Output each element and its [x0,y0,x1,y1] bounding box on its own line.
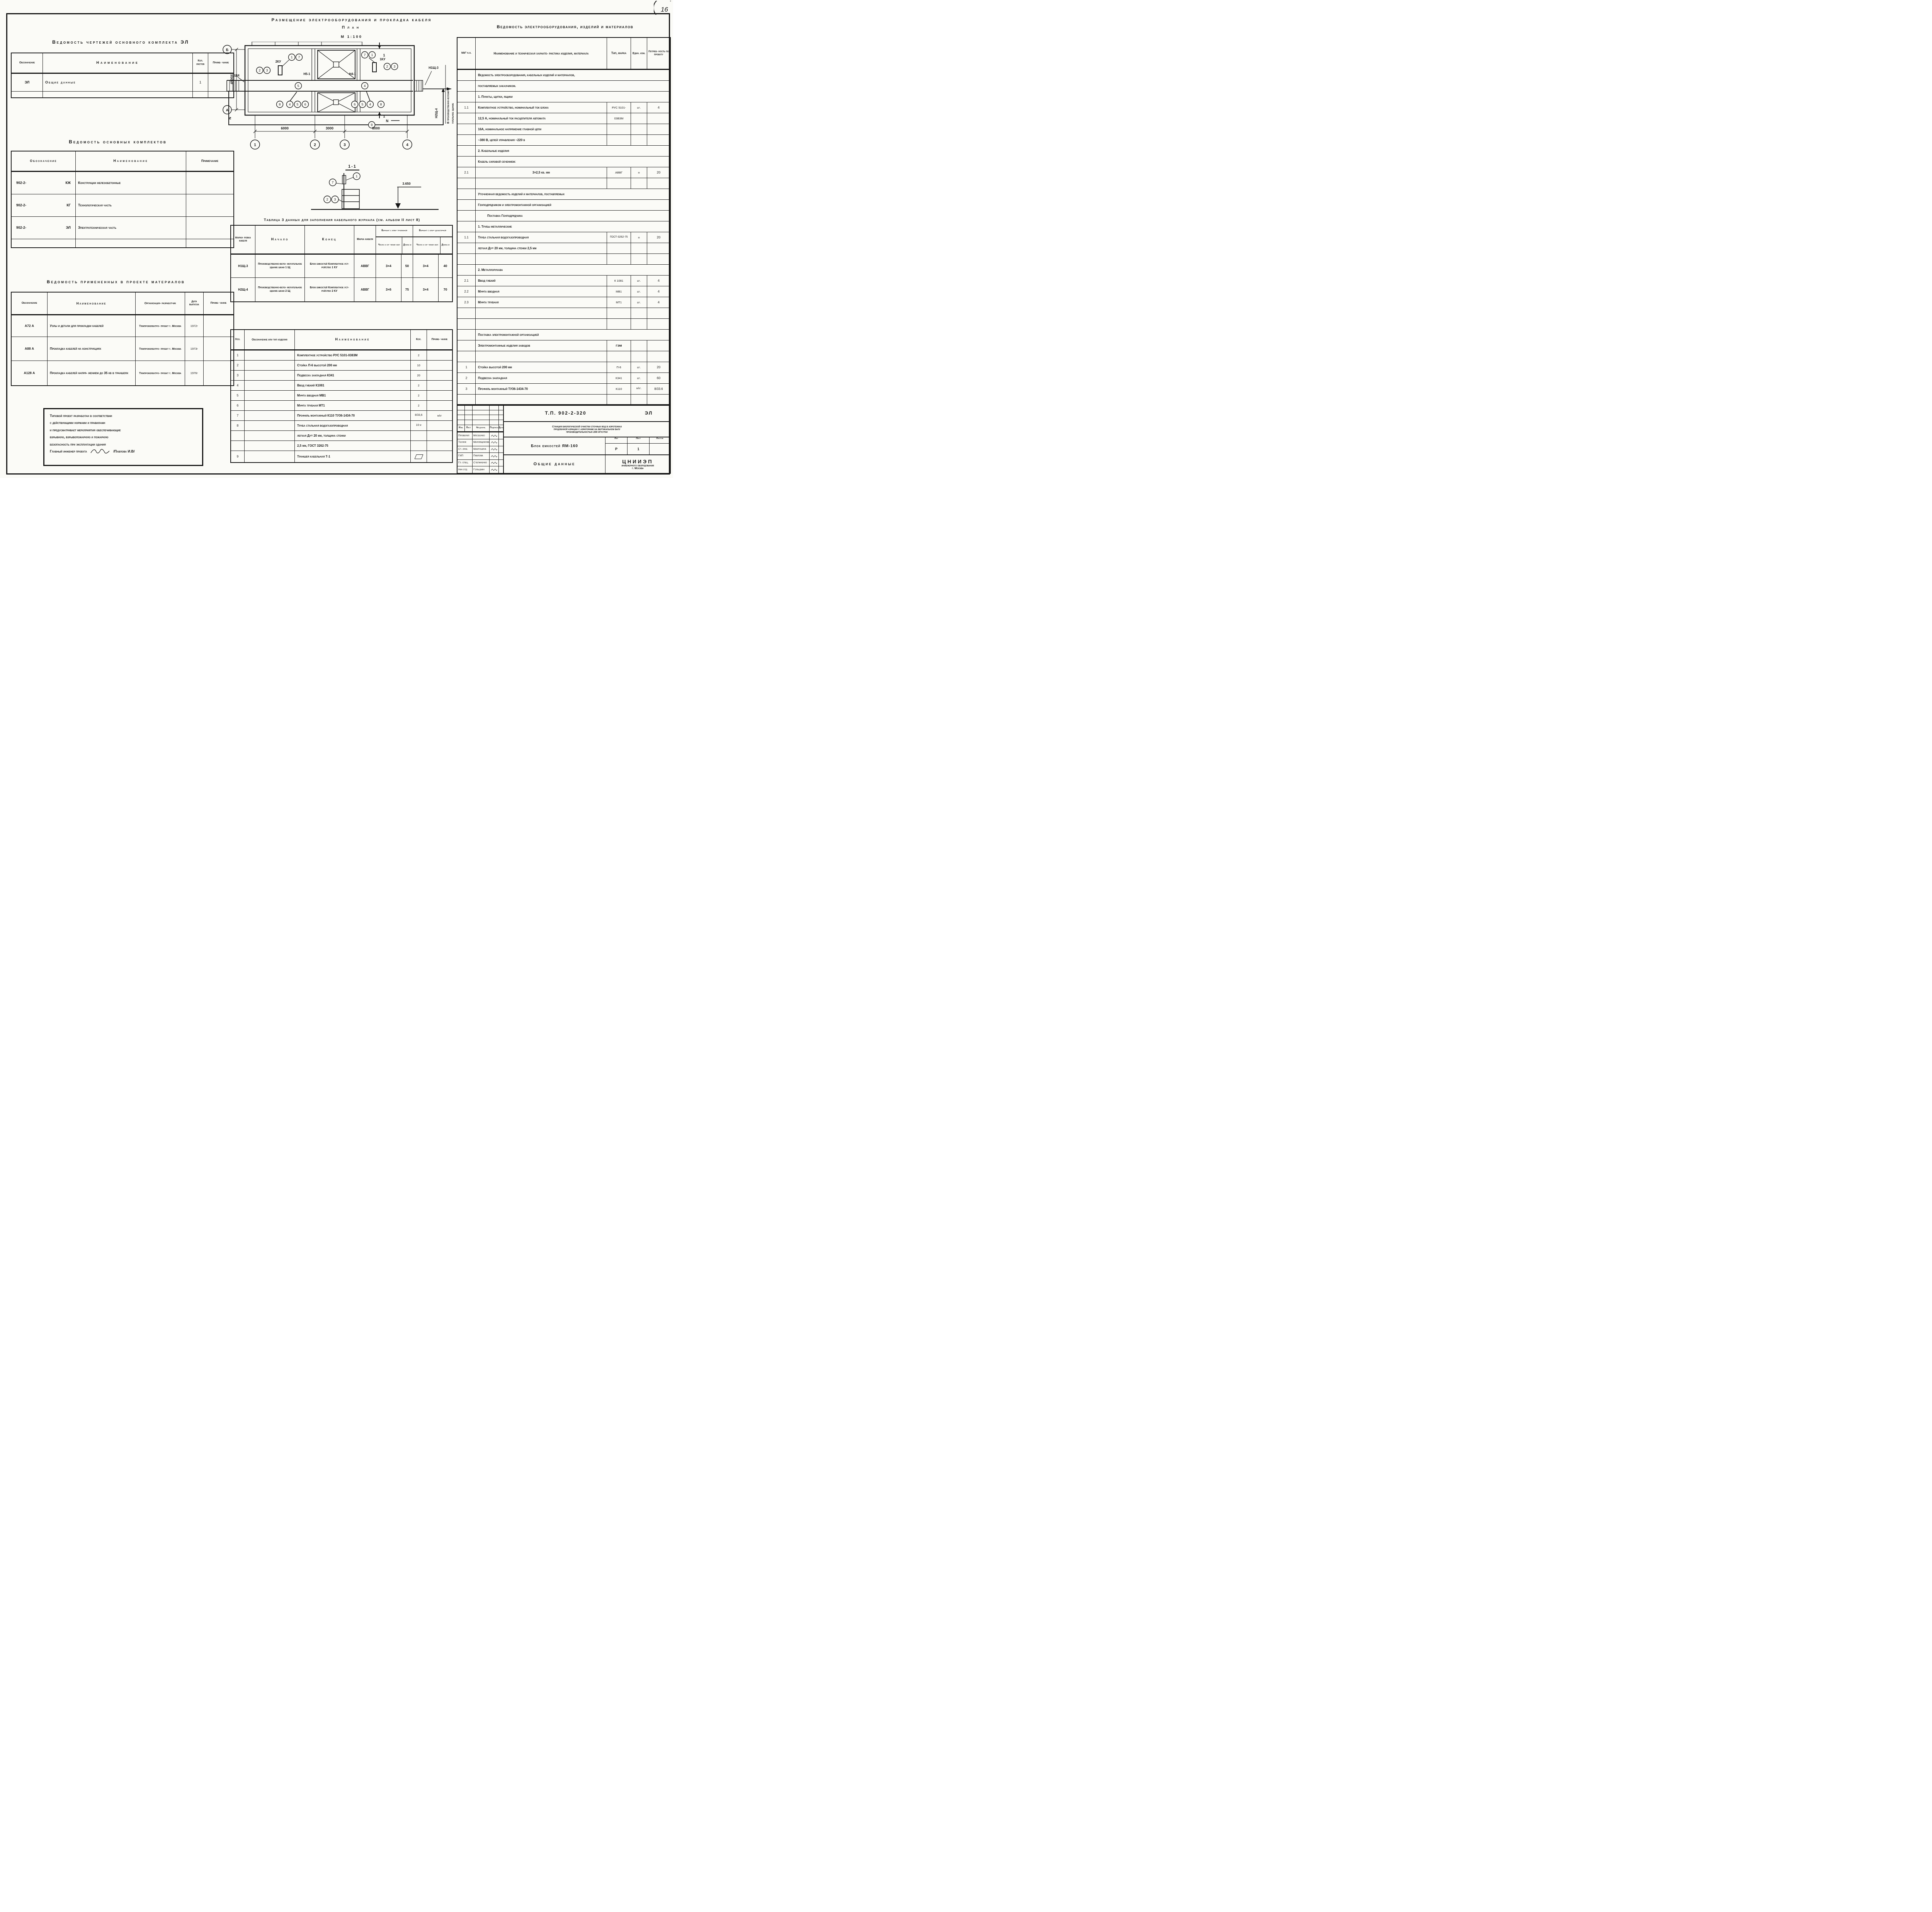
cell-start: Производственно-вспо- могательное здание… [255,255,304,277]
cell-unit: м/кг. [631,384,647,394]
cell-designation: А72 А [12,315,47,337]
cell-start: Производственно-вспо- могательное здание… [255,278,304,301]
cell-end: Блок емкостей Комплектное уст- ройство 2… [304,278,354,301]
staff-role: Гл. спец. [457,460,472,466]
cell-pos: 5 [231,391,244,400]
cell-unit [631,124,647,134]
note-line: взрывную, взрывопожарную и пожарную [50,434,197,441]
cell-type [607,243,631,253]
table-header-row: NN° п.п. Наименование и техническая хара… [457,38,670,70]
cell-note [186,217,233,239]
cell-unit: м [631,167,647,178]
cell-num [457,211,475,221]
cell-note [203,361,233,385]
cell [498,405,503,410]
table-row: 902-2-ЭЛ Электротехническая часть [12,216,233,239]
org-line: инженерного оборудования [621,464,654,467]
cell-designation: 902-2- [16,226,26,230]
cell-note [427,431,452,441]
cell [464,420,472,425]
cell-mark: Н2Щ-4 [231,278,255,301]
callout-1: 1 [356,174,358,178]
table-row [12,239,233,247]
cell [464,410,472,415]
cell-section-text: Поставка Генподрядчика [475,211,670,221]
cell-qty: 10 м [410,421,427,430]
cell-unit [631,308,647,318]
cell-type [607,319,631,329]
org-city: г. Москва [632,467,643,470]
label-1ku: 1КУ [380,58,386,61]
cell-type [607,308,631,318]
col-num: NN° п.п. [457,38,475,69]
table-row [12,91,233,97]
cell-num [457,308,475,318]
col-type: Тип, марка [607,38,631,69]
cell [464,415,472,420]
cell-type: ГОСТ-3262-75 [607,232,631,243]
cell-num [457,330,475,340]
callout-3: 3 [394,65,396,68]
cell-num: 2.2 [457,286,475,297]
table-header-row: Обозначение Наименование Организация- ра… [12,293,233,315]
cell-type [244,361,294,370]
cell-qty: 4 [647,276,670,286]
cell-qty [647,135,670,145]
cell-num [457,178,475,189]
col-unit: Един. изм. [631,38,647,69]
sheet-title-row: Общие данные ЦНИИЭП инженерного оборудов… [504,455,670,473]
cell-qty [410,431,427,441]
cell-note [427,371,452,380]
signature-icon [90,448,110,454]
cell-name: Муфта вводная МВ1 [294,391,410,400]
table-header-row: Обозначение Наименование Кол. листов При… [12,53,233,73]
object-row: Блок емкостей ЯМ-160 Лит Лист Листов Р 1 [504,437,670,455]
callout-2: 2 [259,68,261,72]
col-date: Дата [498,425,503,432]
lit-label: Лит [605,437,628,443]
section-number: 1 [383,114,385,118]
col-start: Начало [255,226,304,253]
cell-unit: шт. [631,297,647,308]
cell-note [186,194,233,216]
plan-subtitle: План [240,26,464,30]
cell-code: КГ [66,203,71,208]
callout-7: 7 [298,55,300,59]
cell-type: ГЭМ [607,340,631,351]
cell-pos: 4 [231,381,244,390]
cell-type [244,411,294,420]
cell [489,415,498,420]
cell-cores-el: 3×4 [376,255,401,277]
cell-qty: 20 [410,371,427,380]
staff-date [498,439,503,446]
cell-pos: 1 [231,350,244,360]
cell-num [457,243,475,253]
cell [75,239,186,247]
cell-cable: АВВГ [354,255,376,277]
staff-date [498,446,503,453]
equipment-table: NN° п.п. Наименование и техническая хара… [457,37,671,406]
cell-name: Муфта вводная [475,286,607,297]
table-row: Н1Щ-3 Производственно-вспо- могательное … [231,254,452,277]
elevation-value: 3.650 [402,182,411,185]
cell-section-text: 1. Трубы металлические [475,221,670,232]
staff-signature [489,466,498,473]
cell-num: 1 [457,362,475,373]
dim-3000: 3000 [326,126,333,130]
table-row: 902-2-КЖ Конструкции железобетонные [12,172,233,194]
equipment-table-title: Ведомость электрооборудования, изделий и… [462,25,668,29]
cell-num [457,113,475,124]
cell-len-el: 50 [401,255,413,277]
sheets-value [650,444,670,454]
signature-icon [491,441,497,444]
cell-unit: м [631,232,647,243]
cell [489,420,498,425]
callout-6: 6 [304,102,306,106]
cell-type [244,371,294,380]
cell-unit [631,319,647,329]
staff-signature [489,453,498,459]
cell-type [607,124,631,134]
cell-len-el: 75 [401,278,413,301]
note-line: и предусматривает мероприятия обеспечива… [50,427,197,434]
leader-line [290,92,297,101]
materials-register-title: Ведомость примененных в проекте материал… [14,280,218,284]
title-block-info: Т.П. 902-2-320 ЭЛ Станция биологической … [504,405,670,473]
cell-end: Блок емкостей Комплектное уст- ройство 1… [304,255,354,277]
doc-number: Т.П. 902-2-320 [504,410,628,416]
cell-qty: 20 [647,232,670,243]
cell-type [607,351,631,362]
drawings-register-table: Обозначение Наименование Кол. листов При… [11,53,234,98]
cell-name: Узлы и детали для прокладки кабелей [47,315,135,337]
axis-label-2: 2 [314,143,316,147]
cell-date: 1972г [185,315,203,337]
cell-name: 16А, номинальное напряжение главной цепи [475,124,607,134]
label-n-mark: N [386,119,389,123]
table-header-row: Поз. Обозначение или тип изделия Наимено… [231,330,452,350]
cell-unit: шт. [631,276,647,286]
table-row: А128 А Прокладка кабелей напря- жением д… [12,361,233,385]
cell-note [203,337,233,361]
cell-type: 03В3М [607,113,631,124]
table-header-row: Обозначение Наименование Примечание [12,151,233,172]
cell-type [607,135,631,145]
cell-name: легкая Ду= 20 мм, толщина стенки [294,431,410,441]
section-mark-top [378,43,381,49]
cell-type: К341 [607,373,631,383]
lit-sheet-grid: Лит Лист Листов Р 1 [605,437,670,454]
cell-pos [231,441,244,451]
col-cores: Число и се- чение жил [376,237,402,253]
cell-num: 2.1 [457,276,475,286]
chief-engineer-name: /Павлова И.В/ [113,448,134,455]
leader-line [366,91,370,101]
title-block: Изм. Лист № докум. Подпись Дата Проверил… [457,404,671,474]
cell-qty [647,178,670,189]
cell-num: 2.1 [457,167,475,178]
label-n-mark: N [228,117,232,120]
cell-section-text: Поставка электромонтажной организацией [475,330,670,340]
staff-role: Проверил [457,432,472,439]
col-sheets: Кол. листов [192,53,208,73]
cell-num [457,146,475,156]
staff-date [498,460,503,466]
table-header-row: Марки- ровка кабеля Начало Конец Марка к… [231,226,452,254]
cell-pos: 9 [231,451,244,462]
cell-type [607,178,631,189]
cell-name: Комплектное устройство, номинальный ток … [475,102,607,113]
label-n1sch-3: Н1Щ-3 [429,66,439,70]
cell-pos [231,431,244,441]
corner-annotation: 16 [654,1,672,19]
cell-designation: ЭЛ [12,74,43,91]
note-line: Типовой проект разработан в соответствии [50,412,197,419]
object-name: Блок емкостей ЯМ-160 [504,437,605,454]
project-line: Станция биологической очистки сточных во… [504,425,670,428]
callout-7: 7 [332,180,334,184]
cell-type [244,451,294,462]
cell [457,420,464,425]
cell-qty: 2 [410,401,427,410]
staff-date [498,466,503,473]
cell-qty: 20 [647,362,670,373]
cell-num: 1.1 [457,232,475,243]
sheet-title: Общие данные [504,455,605,473]
cell-qty [647,351,670,362]
cell-unit: шт. [631,362,647,373]
cell-pos: 6 [231,401,244,410]
cell-unit [631,254,647,264]
cell-num: 1.1 [457,102,475,113]
leader-line [282,60,289,66]
cell-type [244,401,294,410]
cell-qty: 2 [410,350,427,360]
col-name: Наименование [47,293,135,314]
org-name: ЦНИИЭП [622,459,653,464]
cell-note [186,172,233,194]
staff-signature [489,432,498,439]
staff-role: Нач отд [457,466,472,473]
cable-trench-route [229,65,446,125]
col-qty: Кол. [410,330,427,349]
leader-line [346,177,353,180]
cell-name [475,254,607,264]
callout-4: 4 [289,102,291,106]
staff-role: Техник [457,439,472,446]
table-row: А72 А Узлы и детали для прокладки кабеле… [12,315,233,337]
cell-num [457,81,475,91]
cell-unit: шт. [631,373,647,383]
cell-org: Тяжпромэлектро- проект г. Москва [135,315,185,337]
col-doc: № докум. [472,425,489,432]
dim-4500: 4500 [230,77,234,84]
building-outline [245,42,414,115]
note-line: с действующими нормами и правилами [50,419,197,426]
cell-note [427,421,452,430]
cell-qty: 2 [410,391,427,400]
cell-name [475,178,607,189]
sheet-label: Лист [628,437,650,443]
staff-name: Гольцман [472,466,489,473]
cell-pos: 3 [231,371,244,380]
cell-pos: 8 [231,421,244,430]
callout-9: 9 [371,123,373,127]
cell-unit [631,113,647,124]
cell-type [244,431,294,441]
cell [472,420,489,425]
cell-name: Ввод гибкий [475,276,607,286]
cell-unit: шт. [631,102,647,113]
cell-section-text: Генподрядчиком и электромонтажной органи… [475,200,670,210]
cell-type [244,421,294,430]
axis-label-1: 1 [254,143,256,147]
cell-qty: 2 [410,381,427,390]
signature-icon [491,468,497,472]
cell-qty: 4 [647,297,670,308]
signature-icon [491,461,497,465]
cell [489,405,498,410]
sheet-value: 1 [628,444,650,454]
axis-label-3: 3 [344,143,346,147]
trench-marker-icon [414,454,423,459]
cell [192,92,208,97]
cell-type [244,350,294,360]
col-designation: Обозначение [12,151,75,171]
axis-label-4: 4 [406,143,408,147]
cell-name: 2,5 мм, ГОСТ 3262-75 [294,441,410,451]
table-row: ЭЛ Общие данные 1 [12,73,233,91]
cell-qty [647,308,670,318]
cell-date: 1976г [185,361,203,385]
cell-name [475,351,607,362]
callout-1: 1 [291,55,293,59]
cell-num: 2.3 [457,297,475,308]
cell-name: Прокладка кабелей на конструкциях [47,337,135,361]
cell-name: Муфта трубная МТ1 [294,401,410,410]
table-row: Н2Щ-4 Производственно-вспо- могательное … [231,277,452,301]
cell-org: Тяжпромэлектро- проект г. Москва [135,337,185,361]
cell-unit: шт. [631,286,647,297]
cell-num [457,319,475,329]
col-sign: Подпись [489,425,498,432]
corner-note-text: 16 [661,6,668,13]
cell-num [457,156,475,167]
cell-designation: 902-2- [16,181,26,185]
cell [498,420,503,425]
drawings-register-title: Ведомость чертежей основного комплекта Э… [23,39,218,45]
label-n2sch4: Н2Щ4 [231,74,240,77]
cell-num [457,189,475,199]
callout-2: 2 [386,65,388,68]
cell-cores-chlor: 3×4 [413,255,438,277]
leader-line [425,71,432,85]
cell-num [457,135,475,145]
cell-type: К110 [607,384,631,394]
cell [12,239,75,247]
cell-qty [647,113,670,124]
cell-qty [647,254,670,264]
callout-5: 5 [362,102,364,106]
cell-note [427,401,452,410]
cell-unit [631,395,647,405]
cable-journal-table: Марки- ровка кабеля Начало Конец Марка к… [230,225,453,302]
cell [12,92,43,97]
cell-designation: А128 А [12,361,47,385]
col-name: Наименование [75,151,186,171]
callout-4: 4 [364,84,366,88]
note-line: безопасность при эксплуатации здания [50,441,197,448]
plan-title: Размещение электрооборудования и проклад… [240,18,464,22]
cell-qty [647,319,670,329]
cell-num [457,395,475,405]
cell-section-text: поставляемых заказчиком. [475,81,670,91]
col-cable: Марка кабеля [354,226,376,253]
cell-note [203,315,233,337]
col-mark: Марки- ровка кабеля [231,226,255,253]
destination-text-line2: гательное здание [451,103,454,124]
label-n4-1: Н4-1 [349,72,356,76]
cell-note [427,451,452,462]
tank-x-brace-bottom [318,93,355,112]
cell-name: Стойка П-6 высотой 200 мм [294,361,410,370]
col-date: Дата выпуска [185,293,203,314]
corridor-band [227,80,423,91]
callout-2: 2 [327,197,328,201]
project-line: продленной аэрации с аэраторами на верти… [504,428,670,431]
cell-section-text: Уточненная ведомость изделий и материало… [475,189,670,199]
staff-name: Макрушина [472,446,489,453]
cell-pos: 2 [231,361,244,370]
cell-type [244,441,294,451]
cell-qty: 4 [647,286,670,297]
cell-cores-el: 3×6 [376,278,401,301]
cell [472,405,489,410]
section-mark-bottom [378,112,381,118]
plan-scale: М 1:100 [240,35,464,39]
cell-name: Комплектное устройство РУС 5101-0383М [294,350,410,360]
cell-qty: 8/33.6 [647,384,670,394]
col-len: Длина м [402,237,413,253]
callout-3: 3 [266,68,268,72]
cell-cores-chlor: 3×4 [413,278,438,301]
elevation-marker [395,187,421,209]
project-note-block: Типовой проект разработан в соответствии… [43,408,203,466]
cell-name: Электромонтажные изделия заводов [475,340,607,351]
label-2ku: 2КУ [276,60,282,63]
col-list: Лист [464,425,472,432]
section-title: 1-1 [348,164,357,169]
cell [457,410,464,415]
cell-unit [631,351,647,362]
cell-name [475,395,607,405]
cell-cable: АВВГ [354,278,376,301]
cell-name [475,308,607,318]
cell-code: КЖ [65,181,71,185]
axis-label-a: А [226,108,229,112]
cell-name: 12,5 А, номинальный ток расцепителя авто… [475,113,607,124]
callout-7: 7 [364,53,366,57]
dimension-4500 [235,48,238,111]
cell-section-text: 1. Пункты, щитки, ящики [475,92,670,102]
col-designation: Обозначение [12,293,47,314]
materials-register-table: Обозначение Наименование Организация- ра… [11,292,234,386]
cell-note [427,441,452,451]
cell-unit [631,178,647,189]
